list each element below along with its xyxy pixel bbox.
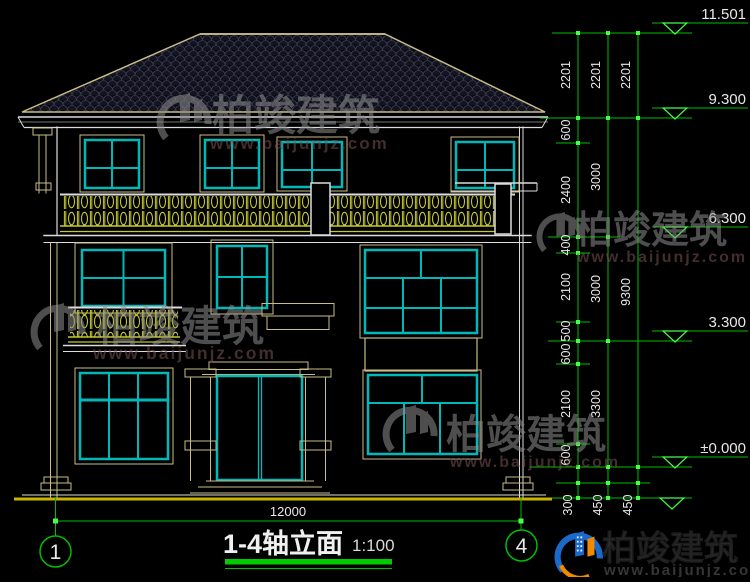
svg-text:±0.000: ±0.000 bbox=[700, 440, 746, 457]
svg-text:9300: 9300 bbox=[619, 278, 633, 306]
svg-text:500: 500 bbox=[559, 321, 573, 342]
svg-text:2201: 2201 bbox=[559, 61, 573, 89]
svg-text:3000: 3000 bbox=[589, 163, 603, 191]
watermark-url: www.baijunjz.com bbox=[576, 249, 747, 266]
svg-text:2400: 2400 bbox=[559, 176, 573, 204]
railing-post bbox=[311, 183, 330, 235]
axis-number-right: 4 bbox=[516, 535, 528, 558]
svg-text:600: 600 bbox=[559, 120, 573, 141]
watermark-brand: 柏竣建筑 bbox=[446, 413, 606, 457]
baluster-band bbox=[62, 196, 313, 226]
corner-brand-url: www.baijunjz.com bbox=[603, 562, 750, 577]
drawing-title: 1-4轴立面 bbox=[223, 528, 343, 559]
elevation-drawing: 1 4 12000 1-4轴立面 1:100 bbox=[0, 0, 750, 577]
svg-text:300: 300 bbox=[561, 495, 575, 516]
watermark-brand: 柏竣建筑 bbox=[575, 210, 727, 252]
svg-text:2201: 2201 bbox=[589, 61, 603, 89]
svg-text:450: 450 bbox=[621, 495, 635, 516]
svg-text:2100: 2100 bbox=[559, 273, 573, 301]
baluster-band bbox=[330, 196, 497, 226]
svg-text:2201: 2201 bbox=[619, 61, 633, 89]
watermark-brand: 柏竣建筑 bbox=[212, 92, 380, 139]
railing-post bbox=[495, 184, 511, 234]
watermark-url: www.baijunjz.com bbox=[92, 343, 276, 363]
svg-text:450: 450 bbox=[591, 495, 605, 516]
title-underline-thick bbox=[225, 559, 392, 565]
svg-text:600: 600 bbox=[559, 344, 573, 365]
svg-text:3.300: 3.300 bbox=[708, 314, 746, 331]
svg-text:400: 400 bbox=[559, 235, 573, 256]
watermark-url: www.baijunjz.com bbox=[449, 454, 620, 471]
watermark-url: www.baijunjz.com bbox=[209, 134, 389, 153]
svg-text:9.300: 9.300 bbox=[708, 91, 746, 108]
svg-text:3000: 3000 bbox=[589, 275, 603, 303]
svg-text:11.501: 11.501 bbox=[701, 6, 746, 23]
drawing-scale: 1:100 bbox=[352, 536, 395, 555]
axis-number-left: 1 bbox=[50, 541, 62, 564]
overall-width-dim: 12000 bbox=[270, 504, 306, 519]
